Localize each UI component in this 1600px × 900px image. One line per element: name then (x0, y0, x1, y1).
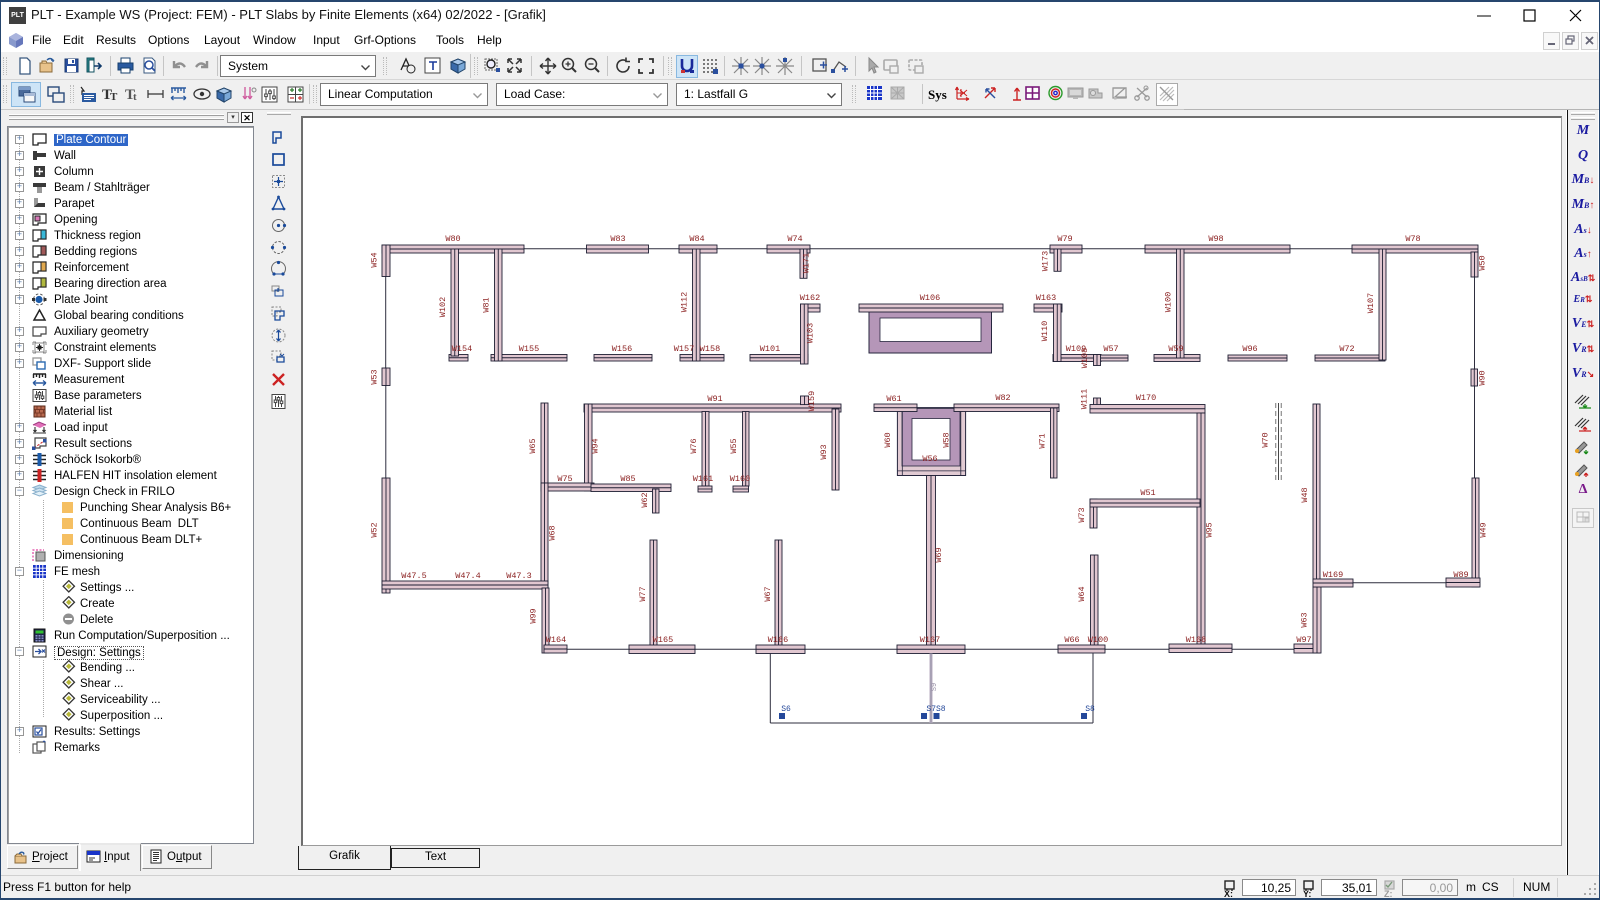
svg-text:W159: W159 (807, 391, 817, 411)
svg-text:W77: W77 (638, 586, 648, 601)
svg-text:S9: S9 (931, 683, 939, 691)
svg-text:W169: W169 (1323, 570, 1343, 580)
svg-text:W78: W78 (1405, 234, 1420, 244)
svg-text:W76: W76 (689, 438, 699, 453)
svg-text:S8: S8 (1085, 705, 1095, 714)
svg-text:W107: W107 (1366, 293, 1376, 313)
svg-text:W163: W163 (1036, 293, 1056, 303)
svg-text:W56: W56 (922, 454, 937, 464)
svg-text:W157: W157 (674, 344, 694, 354)
svg-text:W164: W164 (546, 635, 566, 645)
svg-text:W53: W53 (370, 369, 380, 384)
svg-text:W75: W75 (557, 474, 572, 484)
svg-text:W167: W167 (920, 635, 940, 645)
svg-text:W100: W100 (1164, 292, 1174, 312)
svg-text:W81: W81 (482, 297, 492, 312)
svg-text:W73: W73 (1077, 507, 1087, 522)
svg-text:W171: W171 (802, 253, 812, 273)
svg-text:W90: W90 (1478, 370, 1488, 385)
svg-text:W79: W79 (1057, 234, 1072, 244)
svg-text:W47.5: W47.5 (401, 571, 427, 581)
svg-text:W63: W63 (1300, 612, 1310, 627)
svg-text:W173: W173 (1041, 251, 1051, 271)
svg-text:W70: W70 (1261, 432, 1271, 447)
svg-text:W155: W155 (519, 344, 539, 354)
svg-text:W47.4: W47.4 (455, 571, 481, 581)
svg-text:W54: W54 (370, 252, 380, 267)
svg-text:W98: W98 (1208, 234, 1223, 244)
svg-text:W64: W64 (1077, 586, 1087, 601)
svg-text:W50: W50 (1478, 255, 1488, 270)
svg-text:W82: W82 (995, 393, 1010, 403)
svg-text:T: T (110, 91, 118, 103)
svg-text:W168: W168 (1186, 635, 1206, 645)
svg-text:W66: W66 (1064, 635, 1079, 645)
svg-text:W49: W49 (1479, 522, 1489, 537)
svg-text:W106: W106 (920, 293, 940, 303)
svg-text:S7S8: S7S8 (926, 705, 945, 714)
svg-text:W108: W108 (1080, 348, 1090, 368)
svg-text:W97: W97 (1296, 635, 1311, 645)
svg-text:W69: W69 (934, 547, 944, 562)
svg-text:W84: W84 (689, 234, 704, 244)
svg-text:S6: S6 (781, 705, 791, 714)
svg-text:W58: W58 (942, 432, 952, 447)
svg-text:W55: W55 (729, 438, 739, 453)
svg-text:W96: W96 (1242, 344, 1257, 354)
svg-text:W83: W83 (610, 234, 625, 244)
svg-text:W91: W91 (707, 394, 722, 404)
svg-text:W99: W99 (529, 608, 539, 623)
svg-text:W67: W67 (763, 586, 773, 601)
svg-text:W93: W93 (819, 444, 829, 459)
svg-text:W47.3: W47.3 (506, 571, 532, 581)
svg-text:W51: W51 (1140, 488, 1155, 498)
svg-text:W57: W57 (1103, 344, 1118, 354)
svg-text:t: t (133, 91, 137, 103)
svg-text:W60: W60 (883, 432, 893, 447)
svg-text:W161: W161 (693, 474, 713, 484)
svg-text:W160: W160 (730, 474, 750, 484)
svg-text:W59: W59 (1168, 344, 1183, 354)
svg-text:X:: X: (1224, 889, 1233, 897)
svg-text:W61: W61 (886, 394, 901, 404)
svg-text:W71: W71 (1038, 433, 1048, 448)
svg-text:Z:: Z: (1384, 889, 1393, 897)
svg-text:W80: W80 (445, 234, 460, 244)
svg-text:W165: W165 (653, 635, 673, 645)
svg-text:W95: W95 (1205, 522, 1215, 537)
svg-text:W74: W74 (787, 234, 802, 244)
svg-text:W94: W94 (591, 438, 601, 453)
svg-text:W68: W68 (548, 525, 558, 540)
svg-text:W110: W110 (1040, 321, 1050, 341)
svg-text:Y:: Y: (1303, 889, 1311, 897)
svg-text:W85: W85 (620, 474, 635, 484)
svg-text:W72: W72 (1339, 344, 1354, 354)
svg-text:W100: W100 (1088, 635, 1108, 645)
svg-text:W52: W52 (370, 522, 380, 537)
svg-text:W158: W158 (700, 344, 720, 354)
svg-text:W65: W65 (528, 438, 538, 453)
svg-text:W112: W112 (680, 292, 690, 312)
svg-text:W102: W102 (438, 297, 448, 317)
svg-text:W101: W101 (760, 344, 780, 354)
svg-text:W162: W162 (800, 293, 820, 303)
svg-text:W48: W48 (1300, 487, 1310, 502)
svg-text:W62: W62 (640, 492, 650, 507)
svg-text:W166: W166 (768, 635, 788, 645)
svg-text:W89: W89 (1453, 570, 1468, 580)
svg-text:W156: W156 (612, 344, 632, 354)
svg-text:W111: W111 (1080, 389, 1090, 409)
svg-text:W103: W103 (806, 323, 816, 343)
svg-text:W154: W154 (452, 344, 472, 354)
svg-text:W170: W170 (1136, 393, 1156, 403)
